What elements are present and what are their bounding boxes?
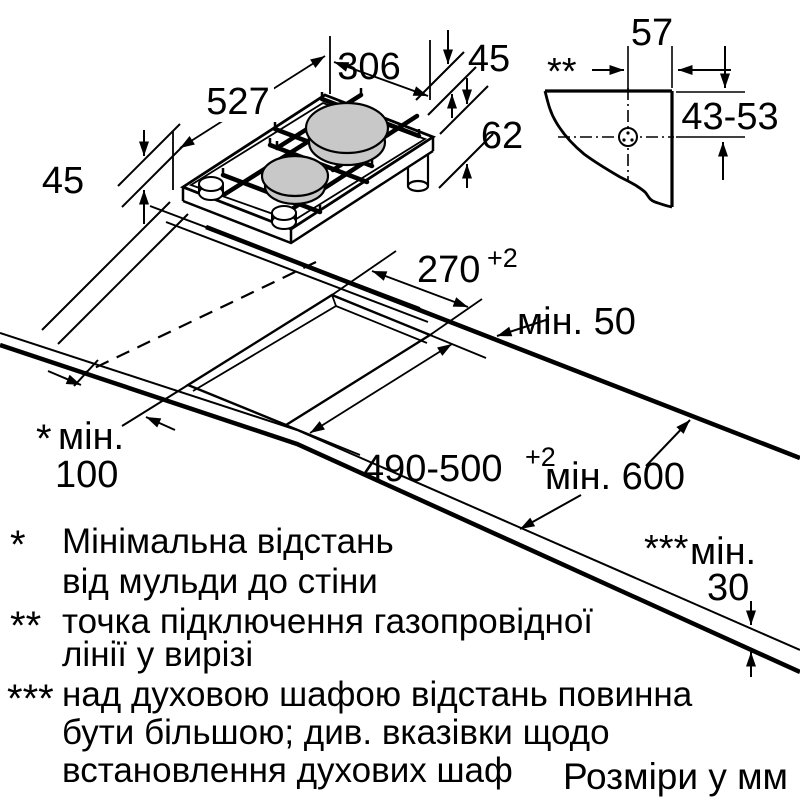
gas-point-marker-label: ** xyxy=(547,51,577,93)
burner-large xyxy=(306,103,388,165)
min-50-label: мін. 50 xyxy=(517,301,636,343)
dim-270-label: 270 xyxy=(417,249,480,291)
dim-270-tolerance: +2 xyxy=(487,243,518,273)
gas-point-mark xyxy=(619,128,637,146)
gas-connection-detail: ** 57 43-53 xyxy=(545,12,779,207)
footnote-1-line-1: Мінімальна відстань xyxy=(62,522,394,561)
footnote-1-line-2: від мульди до стіни xyxy=(62,562,378,601)
left-reference-lines xyxy=(42,124,188,344)
diagram-canvas: 527 306 45 62 45 xyxy=(0,0,800,800)
dim-57-label: 57 xyxy=(631,12,673,54)
footnote-2-line-2: лінії у вирізі xyxy=(62,635,253,674)
min-100-marker: * xyxy=(36,417,52,461)
units-note: Розміри у мм xyxy=(563,756,788,797)
dim-45-left-label: 45 xyxy=(42,160,84,202)
control-knob-2 xyxy=(272,206,296,229)
dim-62-label: 62 xyxy=(481,115,523,157)
burner-small xyxy=(262,156,328,204)
min-600-label: мін. 600 xyxy=(545,456,685,498)
footnote-3-line-3: встановлення духових шаф xyxy=(62,751,513,790)
detail-centerlines xyxy=(558,88,674,182)
installation-diagram: 527 306 45 62 45 xyxy=(0,0,800,800)
footnote-2-marker: ** xyxy=(10,604,41,648)
hob-isometric-view: 527 306 45 62 45 xyxy=(42,30,523,344)
footnote-1-marker: * xyxy=(10,523,26,567)
worktop-corner-piece xyxy=(545,91,672,207)
dim-45-right-label: 45 xyxy=(468,38,510,80)
dim-306-label: 306 xyxy=(337,46,400,88)
footnote-3-line-1: над духовою шафою відстань повинна xyxy=(62,675,693,714)
min-30-value: 30 xyxy=(707,567,749,609)
control-knob-1 xyxy=(199,177,223,200)
dim-527-label: 527 xyxy=(206,81,269,123)
min-100-value: 100 xyxy=(55,454,118,496)
min-30-marker: *** xyxy=(644,528,689,570)
footnote-3-marker: *** xyxy=(7,677,54,721)
footnote-3-line-2: бути більшою; див. вказівки щодо xyxy=(62,713,610,752)
dim-490-500-label: 490-500 xyxy=(363,448,502,490)
min-100-label: мін. xyxy=(58,416,124,458)
dim-43-53-label: 43-53 xyxy=(681,96,778,138)
